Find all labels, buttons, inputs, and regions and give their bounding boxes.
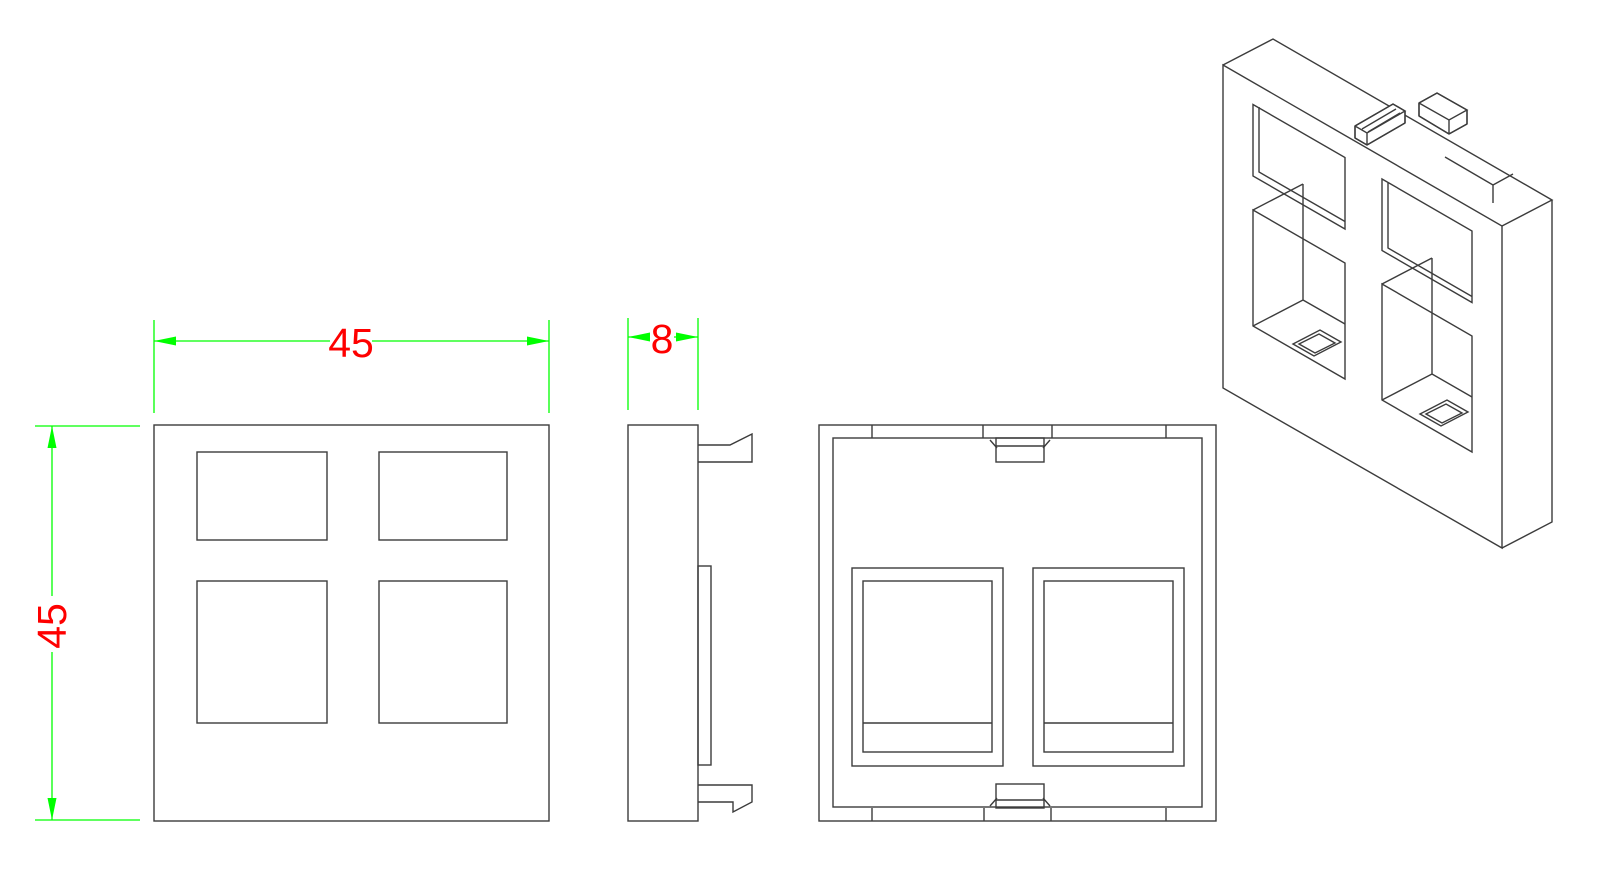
back-top-latch-detail — [990, 440, 1050, 448]
arrow-right-small-icon — [676, 333, 698, 342]
dim-thickness-label: 8 — [651, 316, 674, 362]
back-bottom-latch — [996, 784, 1044, 808]
back-port-left-outer — [852, 568, 1003, 766]
drawing-canvas: 45 45 8 — [0, 0, 1602, 876]
arrow-left-small-icon — [628, 333, 650, 342]
front-window-bottom-right — [379, 581, 507, 723]
iso-top-step — [1445, 157, 1513, 203]
back-top-latch — [996, 438, 1044, 462]
side-bottom-clip — [698, 785, 752, 812]
front-window-top-right — [379, 452, 507, 540]
side-plate-body — [628, 425, 698, 821]
dimension-labels: 45 45 8 — [29, 316, 673, 649]
side-rear-rib — [698, 566, 711, 765]
iso-window-bottom-left — [1253, 210, 1345, 379]
iso-window-top-right — [1382, 179, 1472, 303]
arrow-right-icon — [527, 337, 549, 346]
cad-drawing: 45 45 8 — [0, 0, 1602, 876]
back-port-right-outer — [1033, 568, 1184, 766]
iso-right-face — [1502, 200, 1552, 548]
dim-height-label: 45 — [29, 603, 75, 649]
back-port-left-inner — [863, 581, 992, 752]
back-plate-outline — [819, 425, 1216, 821]
back-port-right-inner — [1044, 581, 1173, 752]
dimension-arrowheads — [48, 333, 699, 821]
iso-window-top-right-depth — [1388, 183, 1472, 297]
iso-window-bottom-right — [1382, 284, 1472, 452]
back-view — [819, 425, 1216, 821]
back-rim-ticks — [872, 425, 1166, 821]
arrow-down-icon — [48, 798, 57, 820]
side-top-clip — [698, 434, 752, 462]
arrow-left-icon — [154, 337, 176, 346]
iso-window-top-left — [1253, 105, 1345, 230]
side-view — [628, 425, 752, 821]
dim-width-label: 45 — [328, 320, 374, 366]
isometric-view — [1223, 39, 1552, 548]
arrow-up-icon — [48, 426, 57, 448]
front-window-top-left — [197, 452, 327, 540]
dimension-lines — [35, 318, 698, 820]
front-plate-outline — [154, 425, 549, 821]
geometry-layer — [154, 39, 1552, 821]
front-window-bottom-left — [197, 581, 327, 723]
back-bottom-latch-detail — [990, 798, 1050, 806]
front-view — [154, 425, 549, 821]
